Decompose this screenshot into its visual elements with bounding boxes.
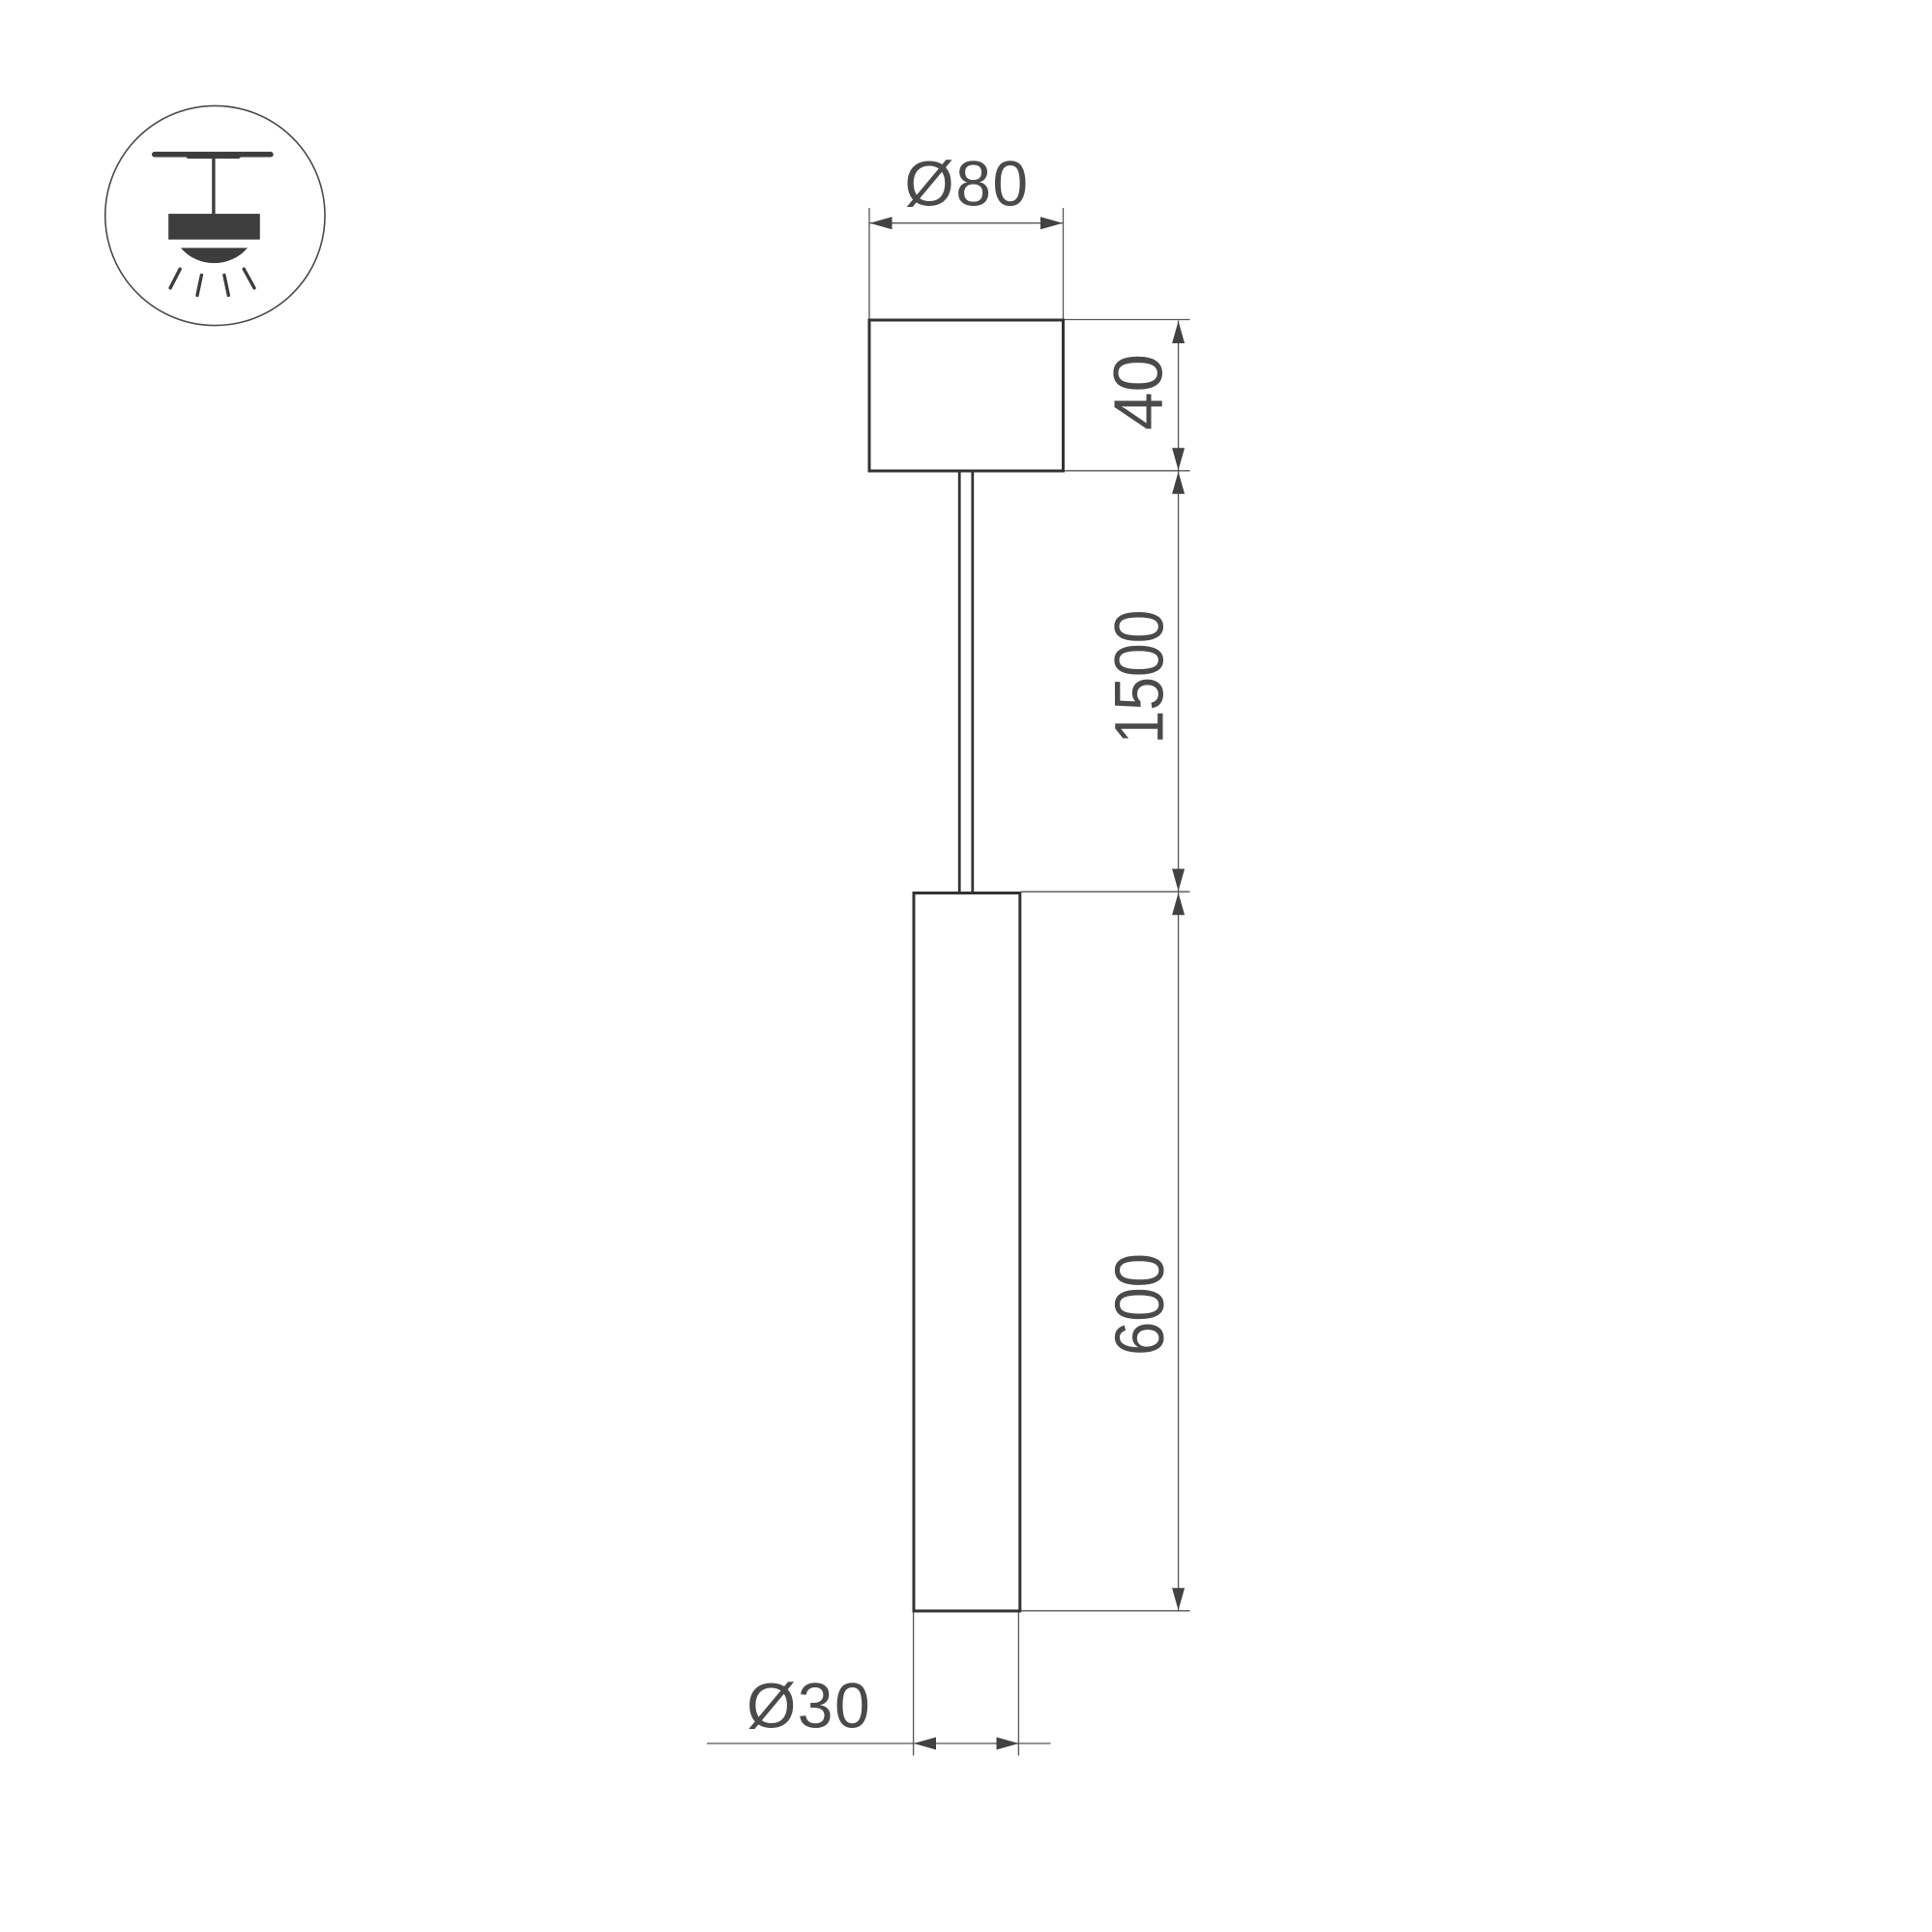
svg-text:Ø30: Ø30: [746, 1670, 871, 1742]
svg-text:1500: 1500: [1101, 610, 1178, 745]
svg-text:Ø80: Ø80: [904, 148, 1029, 220]
svg-text:40: 40: [1100, 354, 1177, 430]
svg-text:600: 600: [1102, 1253, 1179, 1356]
